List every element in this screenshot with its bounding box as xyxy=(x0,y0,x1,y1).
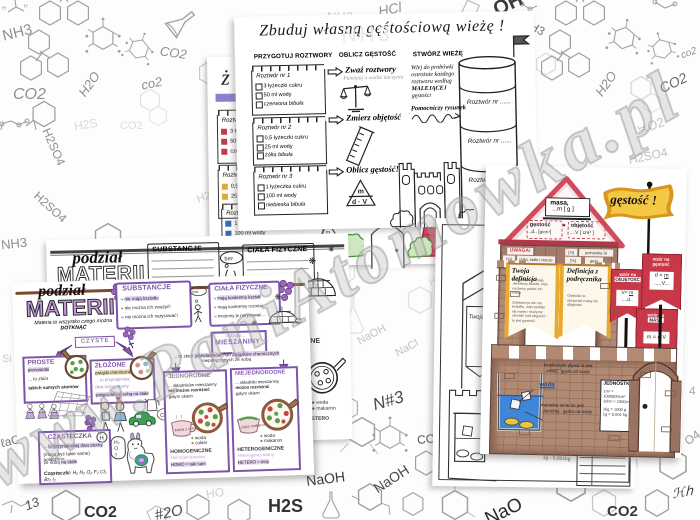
svg-text:brrr: brrr xyxy=(192,289,199,294)
svg-text:4: 4 xyxy=(689,384,696,398)
svg-text:13: 13 xyxy=(22,494,42,514)
svg-text:CO2: CO2 xyxy=(13,86,46,103)
svg-text:m: m xyxy=(358,188,364,195)
svg-text:NaO: NaO xyxy=(482,494,526,520)
svg-text:H: H xyxy=(2,6,6,12)
svg-text:NaOH: NaOH xyxy=(371,462,412,497)
svg-text:O4: O4 xyxy=(682,427,700,448)
svg-text:N#3: N#3 xyxy=(371,387,407,414)
svg-text:CO2: CO2 xyxy=(84,504,117,520)
svg-text:?: ? xyxy=(114,453,117,459)
svg-text:H2S: H2S xyxy=(73,116,98,134)
svg-text:co2: co2 xyxy=(679,45,698,61)
svg-text:CO2: CO2 xyxy=(159,43,188,62)
svg-text:NaOH: NaOH xyxy=(355,322,388,347)
svg-text:H: H xyxy=(99,436,104,442)
svg-text:H2O: H2O xyxy=(75,69,103,100)
svg-text:#2O: #2O xyxy=(153,501,185,520)
svg-text:brrr: brrr xyxy=(224,256,233,262)
svg-text:H2O: H2O xyxy=(592,68,620,99)
svg-text:NH3: NH3 xyxy=(0,235,27,253)
svg-text:HO: HO xyxy=(205,485,225,501)
svg-text:CO2: CO2 xyxy=(120,120,143,132)
svg-text:gęstość !: gęstość ! xyxy=(609,192,657,208)
svg-text:Roztwór nr ......: Roztwór nr ...... xyxy=(467,98,511,106)
svg-text:O: O xyxy=(114,446,118,452)
svg-text:≒O2: ≒O2 xyxy=(635,114,667,137)
svg-text:CO2: CO2 xyxy=(657,69,690,96)
svg-text:Roztwór nr ......: Roztwór nr ...... xyxy=(468,137,512,145)
svg-text:H: H xyxy=(24,4,28,10)
svg-text:H2S: H2S xyxy=(268,496,303,516)
svg-text:H2SO4: H2SO4 xyxy=(39,126,68,168)
svg-text:Si: Si xyxy=(2,353,12,365)
svg-text:H2SO4: H2SO4 xyxy=(31,189,70,226)
svg-text:H2SO4: H2SO4 xyxy=(627,145,669,167)
svg-text:co2: co2 xyxy=(140,74,164,93)
svg-text:NaCl: NaCl xyxy=(393,337,420,359)
svg-text:d · V: d · V xyxy=(352,199,368,206)
svg-text:CO2: CO2 xyxy=(607,503,638,520)
svg-text:ℋℎ: ℋℎ xyxy=(671,483,695,502)
